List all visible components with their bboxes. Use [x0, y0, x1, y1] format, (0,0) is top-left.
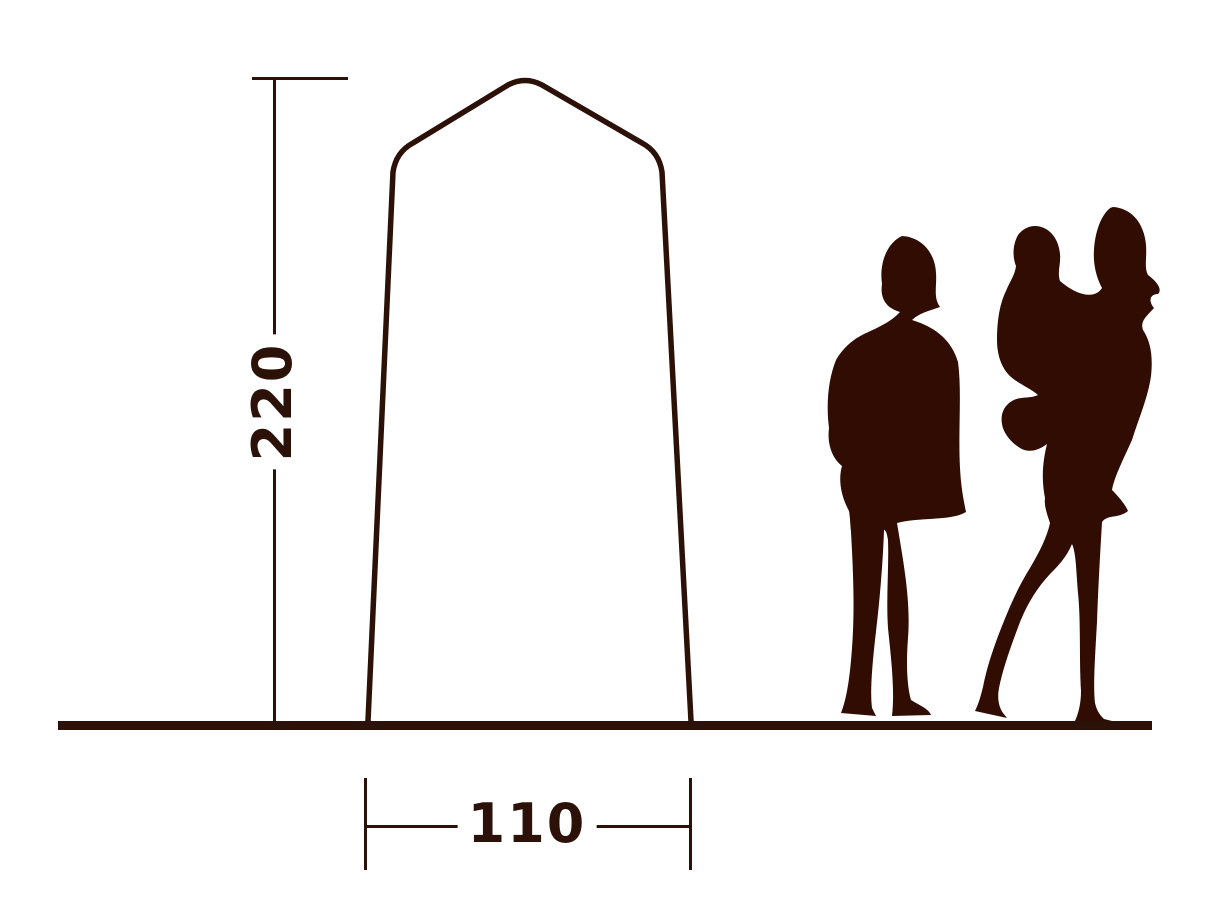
standing-woman-silhouette	[828, 236, 966, 716]
tent-outline	[368, 81, 691, 722]
diagram-canvas	[0, 0, 1230, 917]
adult-carrying-child-silhouette	[975, 207, 1160, 721]
height-dimension-label: 220	[244, 335, 302, 470]
width-dimension-label: 110	[458, 797, 597, 851]
ground-line	[58, 721, 1152, 730]
dimension-diagram: 220 110	[0, 0, 1230, 917]
